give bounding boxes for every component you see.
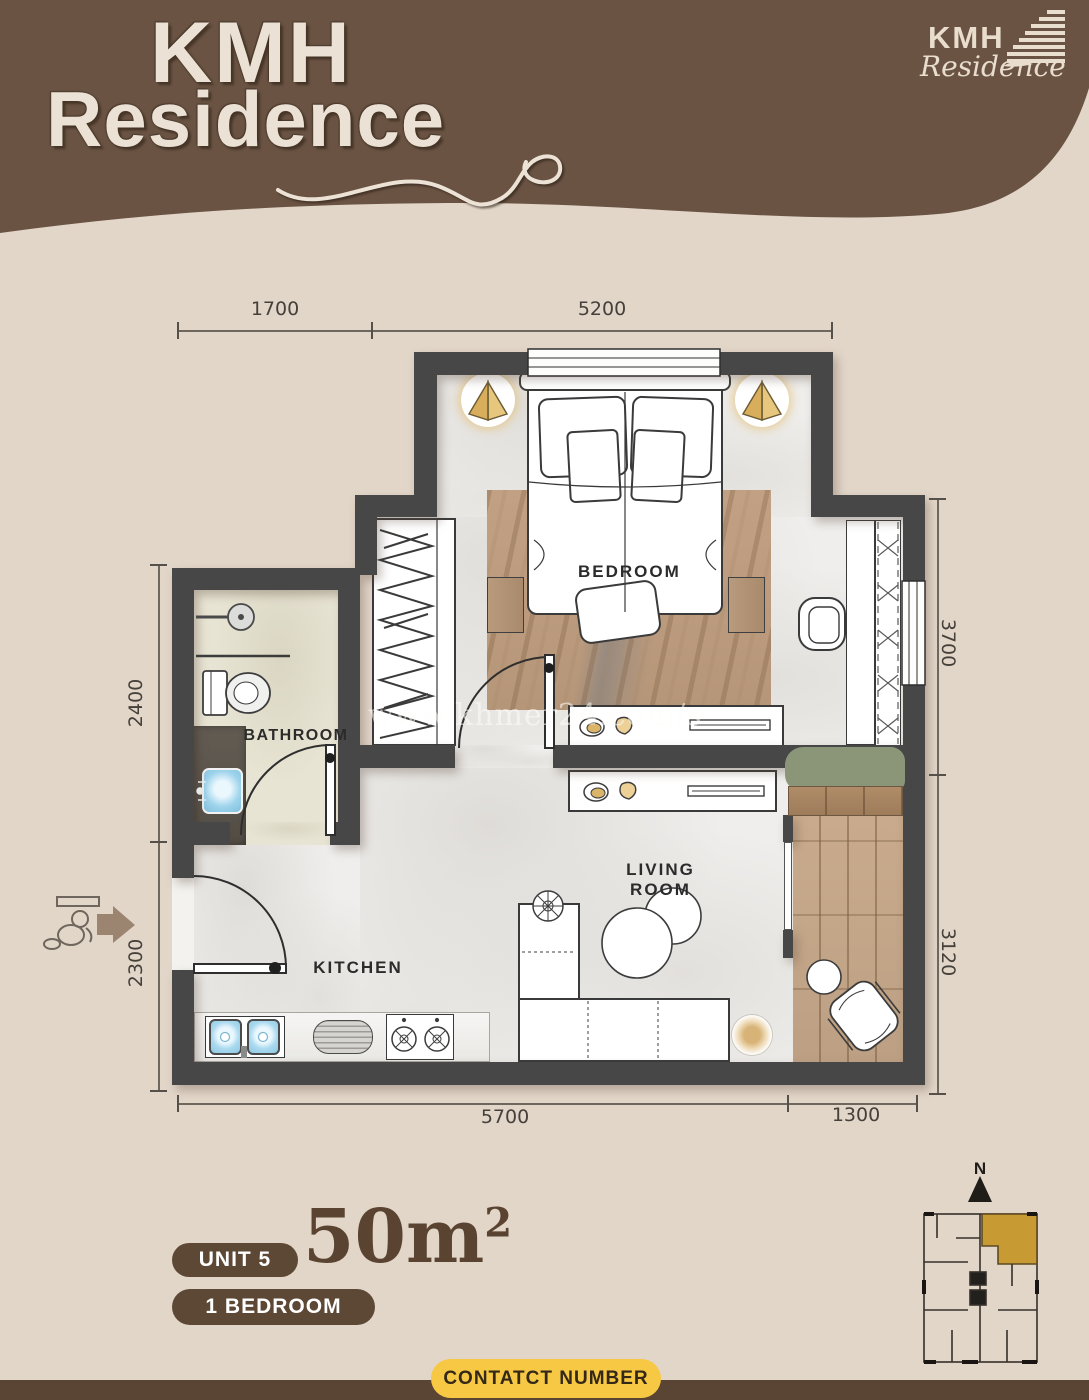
desk [846, 520, 875, 745]
sink-basin-left [209, 1019, 242, 1055]
sink-basin-right [247, 1019, 280, 1055]
tick [177, 1095, 179, 1112]
vanity-sink [202, 768, 243, 814]
accent-pillow [574, 579, 663, 646]
key-plan: N [900, 1148, 1060, 1366]
living-room-label: LIVING ROOM [598, 860, 723, 900]
kitchen-label: KITCHEN [308, 958, 408, 978]
tick [787, 1095, 789, 1112]
wall-mid-left [360, 745, 455, 768]
tick [177, 322, 179, 339]
tick [150, 564, 167, 566]
console-living-side [568, 770, 777, 812]
north-label: N [974, 1159, 986, 1178]
sofa [518, 998, 730, 1062]
dim-left-2400: 2400 [125, 663, 147, 743]
nightstand-right [728, 577, 765, 633]
bathroom-label: BATHROOM [231, 727, 361, 745]
dim-right-3120: 3120 [937, 912, 959, 992]
wall-bathroom-right [338, 590, 360, 845]
swirl-flourish-icon [270, 128, 580, 228]
nightstand-left [487, 577, 524, 633]
wall-entry-upper [172, 845, 194, 878]
dim-line-bottom [178, 1103, 918, 1105]
wall-bathroom-left [172, 568, 194, 845]
dim-line-right [937, 499, 939, 1095]
balcony-sliding-door [784, 842, 792, 930]
wall-right [903, 495, 925, 1085]
watermark: www.khmer24.com/s [368, 698, 703, 733]
ceiling-lamp-left [461, 373, 515, 427]
pouf [732, 1015, 772, 1055]
bedroom-type-badge: 1 BEDROOM [172, 1289, 375, 1325]
bedroom-door-gap [455, 745, 553, 768]
tick [929, 774, 946, 776]
balcony-stub-b [783, 930, 793, 958]
tick [929, 1093, 946, 1095]
balcony-wood-floor [793, 815, 903, 1062]
drain-board [313, 1020, 373, 1054]
dim-top-5200: 5200 [562, 298, 642, 320]
dim-line-left [158, 565, 160, 1092]
bedroom-label: BEDROOM [578, 562, 678, 582]
tick [150, 841, 167, 843]
dim-left-2300: 2300 [125, 923, 147, 1003]
tick [929, 498, 946, 500]
sofa-chaise [518, 903, 580, 1000]
wall-bedroom-left [414, 352, 437, 517]
wall-bathroom-bottom-b [330, 822, 360, 845]
north-arrow-icon [968, 1176, 992, 1202]
wall-bathroom-bottom-a [194, 822, 230, 845]
balcony-stub-a [783, 815, 793, 842]
planter-box [788, 786, 903, 816]
wall-bedroom-right [811, 352, 833, 517]
ceiling-lamp-right [735, 373, 789, 427]
tick [371, 322, 373, 339]
dim-line-top [178, 330, 833, 332]
person-icon [44, 897, 99, 949]
contact-number-button[interactable]: CONTATCT NUMBER [431, 1359, 661, 1398]
tick [831, 322, 833, 339]
wall-step-v [355, 495, 377, 575]
wall-top [414, 352, 833, 375]
building-bars-icon [1003, 8, 1067, 70]
area-superscript: 2 [484, 1199, 512, 1246]
key-plan-drawing [924, 1214, 1037, 1362]
wall-bottom [172, 1062, 925, 1085]
dim-top-1700: 1700 [235, 298, 315, 320]
entry-door-gap [172, 878, 194, 970]
unit-badge: UNIT 5 [172, 1243, 298, 1277]
planter-greenery [785, 747, 905, 791]
tick [150, 1090, 167, 1092]
dim-bottom-1300: 1300 [816, 1104, 896, 1126]
wall-bathroom-top [172, 568, 360, 590]
pillow-small-left [566, 429, 622, 504]
tick [916, 1095, 918, 1112]
dim-right-3700: 3700 [937, 603, 959, 683]
stove [386, 1014, 454, 1060]
sliding-wardrobe [875, 520, 901, 746]
pillow-small-right [630, 429, 686, 504]
flyer-page: KMH Residence KMH Residence [0, 0, 1089, 1400]
dim-bottom-5700: 5700 [465, 1106, 545, 1128]
area-value: 50m2 [303, 1194, 512, 1280]
